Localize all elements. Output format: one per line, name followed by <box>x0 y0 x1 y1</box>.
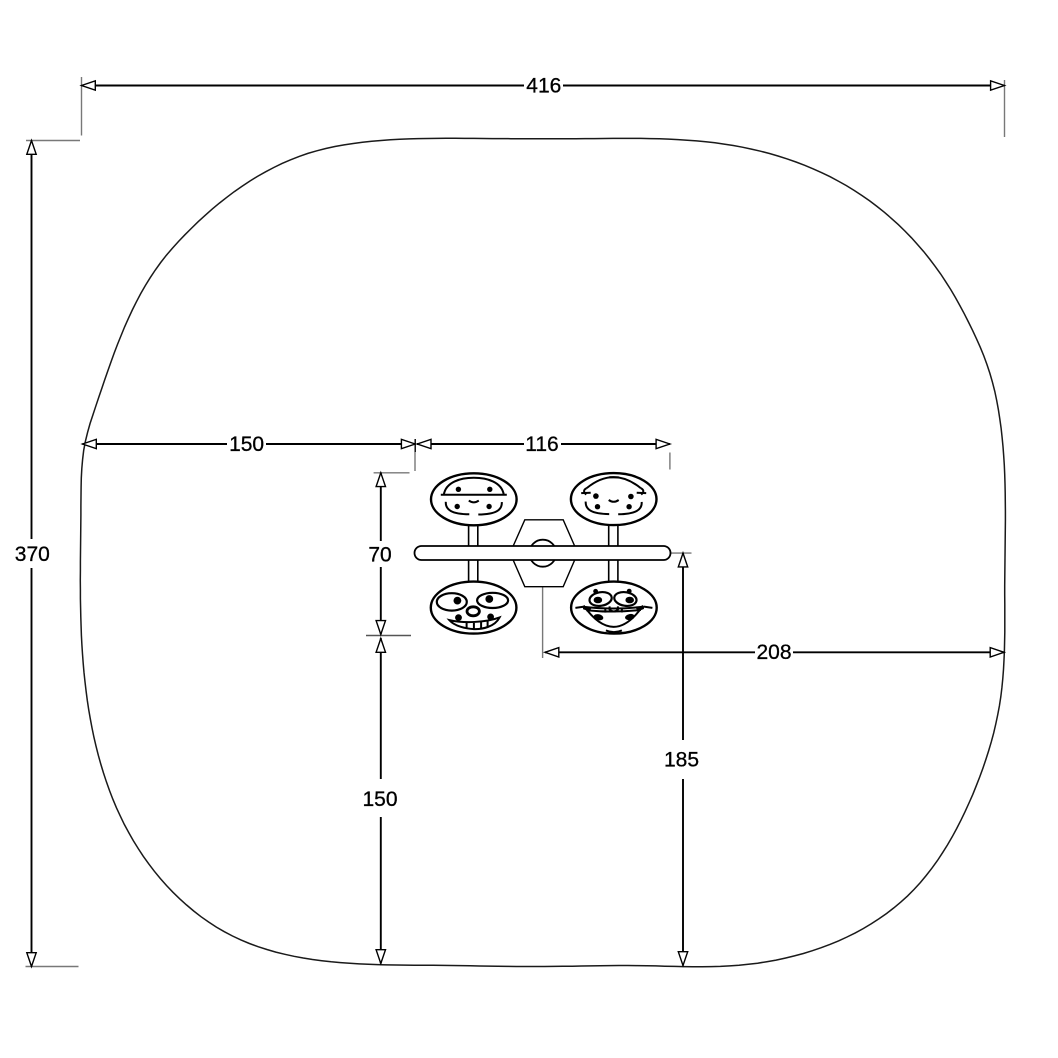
svg-text:70: 70 <box>368 544 391 567</box>
svg-text:185: 185 <box>664 749 699 772</box>
svg-text:150: 150 <box>362 788 397 811</box>
svg-text:208: 208 <box>756 641 791 664</box>
svg-text:370: 370 <box>15 543 50 566</box>
svg-text:416: 416 <box>526 74 561 97</box>
svg-text:116: 116 <box>525 433 558 456</box>
svg-text:150: 150 <box>229 433 264 456</box>
